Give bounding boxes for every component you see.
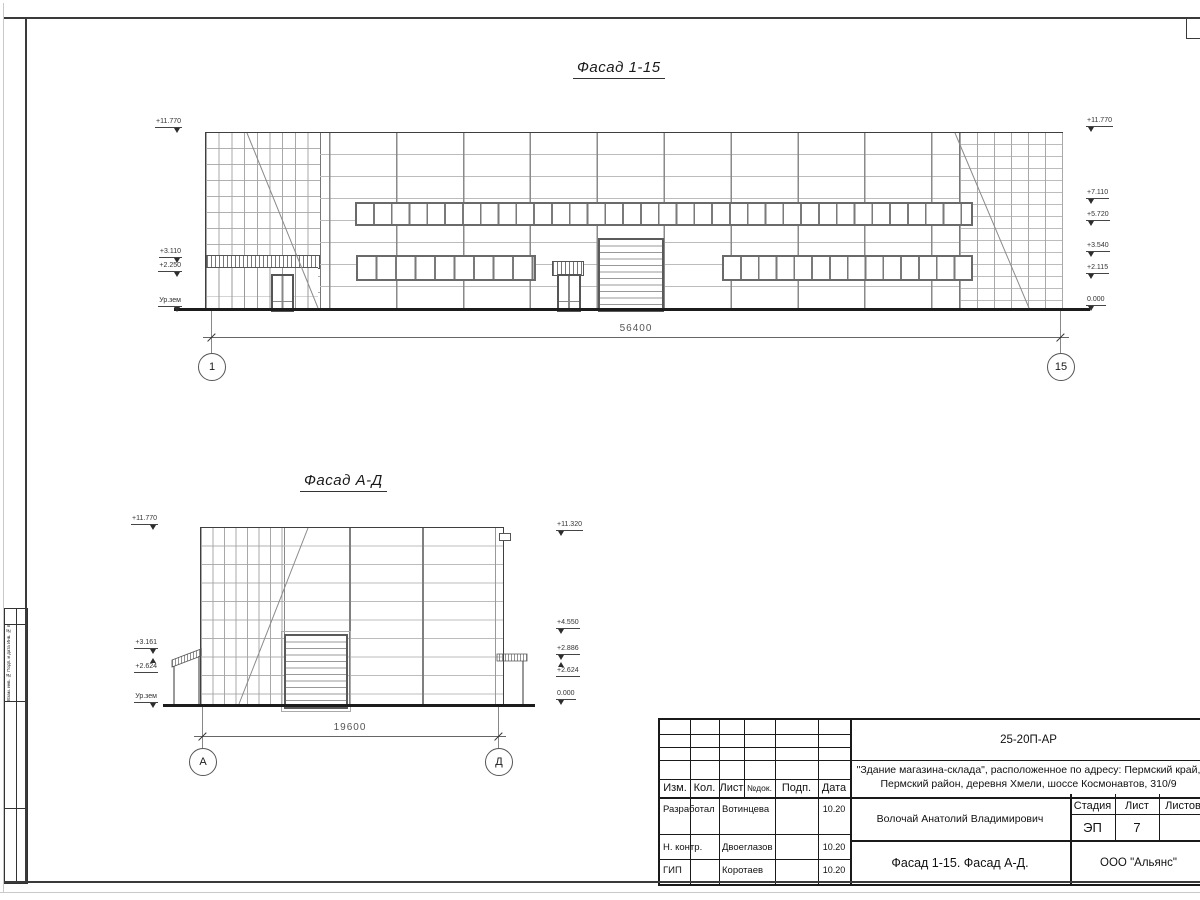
elevation-flag-icon bbox=[174, 307, 180, 312]
sheet-edge-bottom bbox=[0, 892, 1200, 893]
middle-entrance-door bbox=[557, 274, 581, 312]
col-header-sign: Подп. bbox=[775, 779, 818, 797]
facade-1-15-title: Фасад 1-15 bbox=[573, 59, 665, 79]
extension-line bbox=[211, 311, 212, 353]
axis-bubble-d: Д bbox=[485, 748, 513, 776]
left-leanto-roof bbox=[172, 649, 201, 667]
elevation-flag-icon bbox=[1088, 127, 1094, 132]
elevation-mark: +7.110 bbox=[1086, 189, 1109, 204]
drawing-title: Фасад 1-15. Фасад А-Д. bbox=[850, 841, 1070, 884]
elevation-mark: +3.540 bbox=[1086, 242, 1110, 257]
elevation-mark: +11.770 bbox=[155, 118, 182, 133]
person-role: ГИП bbox=[663, 860, 719, 880]
elevation-mark: +3.161 bbox=[134, 639, 158, 654]
person-role: Разработал bbox=[663, 800, 719, 818]
facade-1-15-upper-window-band bbox=[355, 202, 973, 226]
sheets-value bbox=[1159, 814, 1200, 840]
left-entrance-door bbox=[271, 274, 294, 312]
ground-line-facade-a-d bbox=[163, 704, 535, 707]
project-name: "Здание магазина-склада", расположенное … bbox=[850, 760, 1200, 797]
document-number: 25-20П-АР bbox=[850, 720, 1200, 760]
elevation-mark: +2.886 bbox=[556, 645, 580, 660]
elevation-flag-icon bbox=[1088, 252, 1094, 257]
elevation-mark: +4.550 bbox=[556, 619, 580, 634]
elevation-mark: Ур.зем bbox=[134, 693, 158, 708]
facade-1-15-lower-right-window-band bbox=[722, 255, 973, 281]
extension-line bbox=[498, 707, 499, 748]
dimension-text: 56400 bbox=[586, 323, 686, 334]
company-name: ООО "Альянс" bbox=[1070, 841, 1200, 884]
drawing-sheet: Фасад 1-15 +11.770 +3.110 +2.250 Ур.зем … bbox=[0, 0, 1200, 900]
elevation-flag-icon bbox=[558, 531, 564, 536]
person-date: 10.20 bbox=[818, 837, 850, 857]
elevation-mark: +5.720 bbox=[1086, 211, 1110, 226]
dimension-text: 19600 bbox=[300, 722, 400, 733]
stage-label: Стадия bbox=[1070, 797, 1115, 814]
elevation-flag-icon bbox=[1088, 199, 1094, 204]
elevation-mark: Ур.зем bbox=[158, 297, 182, 312]
person-date: 10.20 bbox=[818, 800, 850, 818]
person-date: 10.20 bbox=[818, 860, 850, 880]
elevation-flag-icon bbox=[558, 655, 564, 660]
roller-gate bbox=[284, 634, 348, 709]
frame-corner-box bbox=[1186, 18, 1200, 39]
facade-1-15-right-panel-grid bbox=[959, 133, 1063, 310]
col-header-doc: №док. bbox=[744, 779, 775, 797]
elevation-mark: +2.624 bbox=[556, 662, 580, 677]
stage-value: ЭП bbox=[1070, 814, 1115, 840]
elevation-mark: +3.110 bbox=[159, 248, 182, 263]
extension-line bbox=[1060, 311, 1061, 353]
sheets-label: Листов bbox=[1159, 797, 1200, 814]
elevation-mark: +2.115 bbox=[1086, 264, 1109, 279]
extension-line bbox=[202, 707, 203, 748]
roof-vent bbox=[499, 533, 511, 541]
elevation-mark: +11.770 bbox=[1086, 117, 1113, 132]
person-role: Н. контр. bbox=[663, 837, 719, 857]
col-header-list: Лист bbox=[719, 779, 744, 797]
person-name: Двоеглазов bbox=[722, 837, 775, 857]
axis-bubble-15: 15 bbox=[1047, 353, 1075, 381]
elevation-flag-icon bbox=[150, 649, 156, 654]
column-mullion bbox=[495, 528, 496, 706]
axis-bubble-a: А bbox=[189, 748, 217, 776]
dimension-line bbox=[194, 736, 506, 737]
elevation-flag-icon bbox=[1088, 274, 1094, 279]
title-block: Изм. Кол. Лист №док. Подп. Дата Разработ… bbox=[658, 718, 1200, 886]
col-header-izm: Изм. bbox=[660, 779, 690, 797]
facade-a-d-left-panel-grid bbox=[201, 528, 285, 706]
elevation-mark: 0.000 bbox=[556, 690, 576, 705]
facade-a-d-elevation bbox=[200, 527, 504, 706]
facade-1-15-lower-left-window-band bbox=[356, 255, 536, 281]
column-mullion bbox=[422, 528, 424, 706]
elevation-flag-icon bbox=[174, 128, 180, 133]
elevation-flag-icon bbox=[558, 629, 564, 634]
elevation-mark: +11.320 bbox=[556, 521, 583, 536]
col-header-kol: Кол. bbox=[690, 779, 719, 797]
elevation-flag-icon bbox=[558, 700, 564, 705]
column-mullion bbox=[349, 528, 351, 706]
elevation-flag-icon bbox=[150, 703, 156, 708]
sectional-gate bbox=[598, 238, 664, 312]
sheet-edge-left bbox=[3, 3, 4, 893]
facade-a-d-title: Фасад А-Д bbox=[300, 472, 387, 492]
sheet-label: Лист bbox=[1115, 797, 1159, 814]
frame-left bbox=[25, 17, 27, 882]
elevation-mark: +2.250 bbox=[158, 262, 182, 277]
col-header-date: Дата bbox=[818, 779, 850, 797]
left-entrance-storefront bbox=[206, 267, 318, 309]
elevation-mark: 0.000 bbox=[1086, 296, 1106, 311]
person-name: Вотинцева bbox=[722, 800, 775, 818]
axis-bubble-1: 1 bbox=[198, 353, 226, 381]
dimension-line bbox=[203, 337, 1069, 338]
ground-line-facade-1-15 bbox=[174, 308, 1090, 311]
person-name: Коротаев bbox=[722, 860, 775, 880]
elevation-flag-icon bbox=[1088, 306, 1094, 311]
elevation-flag-icon bbox=[1088, 221, 1094, 226]
elevation-flag-icon bbox=[150, 525, 156, 530]
elevation-mark: +11.770 bbox=[131, 515, 158, 530]
frame-bottom bbox=[4, 881, 1200, 883]
frame-top bbox=[4, 17, 1200, 19]
approver-name: Волочай Анатолий Владимирович bbox=[850, 797, 1070, 840]
elevation-flag-icon bbox=[174, 272, 180, 277]
elevation-mark: +2.624 bbox=[134, 658, 158, 673]
sheet-value: 7 bbox=[1115, 814, 1159, 840]
margin-strip-labels: Взам. инв. № Подп. и дата Инв. № подл. bbox=[6, 625, 15, 701]
